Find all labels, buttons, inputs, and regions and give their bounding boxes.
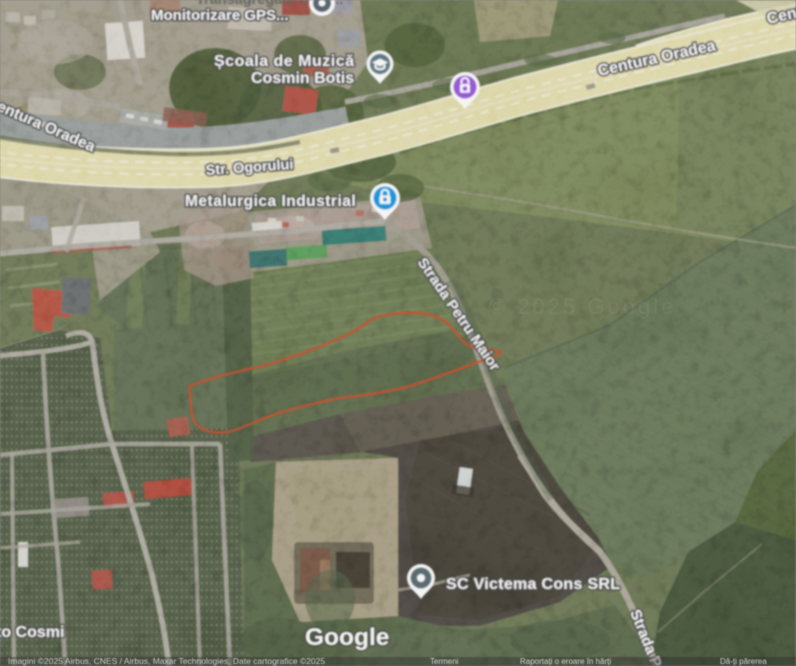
svg-text:Metalurgica Industrial: Metalurgica Industrial bbox=[185, 193, 356, 210]
svg-text:Termeni: Termeni bbox=[430, 657, 459, 666]
svg-text:Imagini ©2025 Airbus, CNES / A: Imagini ©2025 Airbus, CNES / Airbus, Max… bbox=[8, 656, 325, 666]
svg-text:Școala de Muzică: Școala de Muzică bbox=[214, 53, 355, 70]
svg-text:Google: Google bbox=[305, 624, 389, 651]
svg-text:Monitorizare GPS...: Monitorizare GPS... bbox=[151, 7, 289, 24]
svg-text:© 2025 Google: © 2025 Google bbox=[489, 294, 676, 319]
svg-text:to Cosmi: to Cosmi bbox=[0, 624, 64, 641]
svg-text:SC Victema Cons SRL: SC Victema Cons SRL bbox=[446, 576, 620, 593]
svg-text:Dă-ți părerea: Dă-ți părerea bbox=[720, 657, 767, 666]
svg-text:Raportați o eroare în hărți: Raportați o eroare în hărți bbox=[520, 657, 611, 666]
svg-text:Cosmin Botis: Cosmin Botis bbox=[251, 70, 354, 87]
